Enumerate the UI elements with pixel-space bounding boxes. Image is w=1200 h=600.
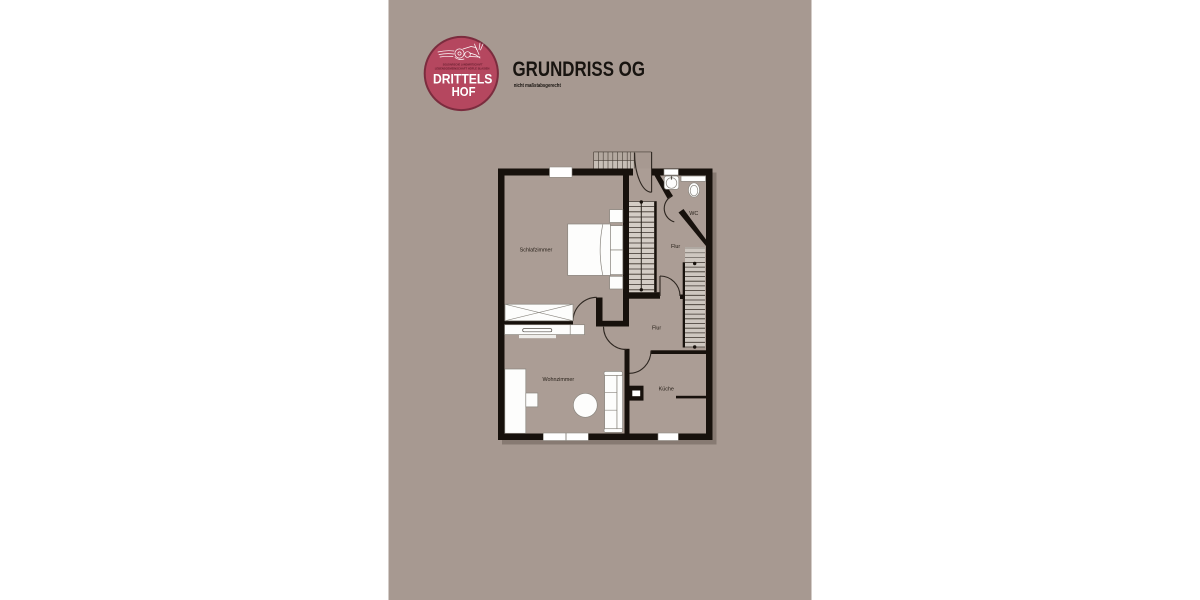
svg-text:Flur: Flur bbox=[652, 326, 661, 332]
svg-text:HOF: HOF bbox=[452, 84, 476, 99]
svg-text:Flur: Flur bbox=[671, 244, 680, 250]
svg-text:LEBENSGEMEINSCHAFT HÖFLE BLASI: LEBENSGEMEINSCHAFT HÖFLE BLASIEN bbox=[435, 66, 490, 71]
svg-text:GRUNDRISS OG: GRUNDRISS OG bbox=[513, 57, 646, 81]
svg-text:nicht maßstabsgerecht: nicht maßstabsgerecht bbox=[514, 83, 561, 89]
svg-text:WC: WC bbox=[689, 211, 698, 217]
svg-text:Küche: Küche bbox=[659, 386, 674, 392]
svg-text:Wohnzimmer: Wohnzimmer bbox=[542, 377, 574, 383]
svg-text:Schlafzimmer: Schlafzimmer bbox=[520, 248, 553, 254]
